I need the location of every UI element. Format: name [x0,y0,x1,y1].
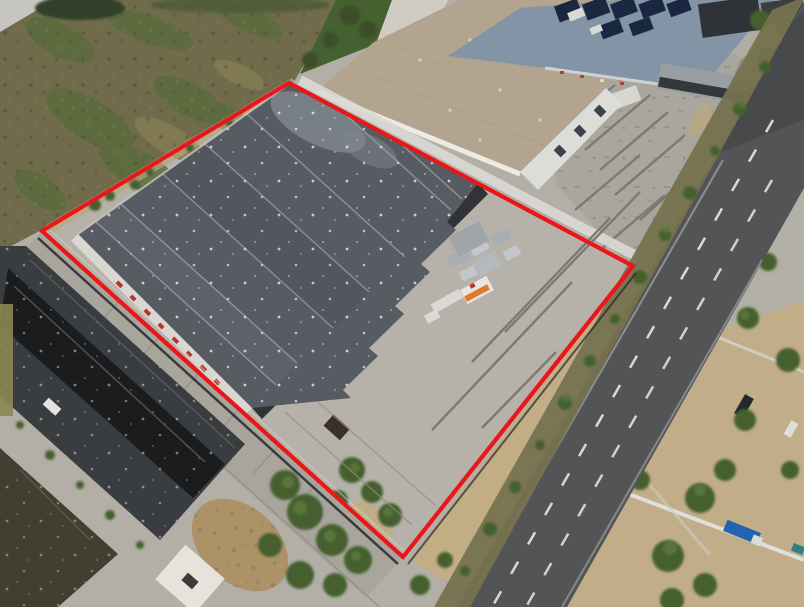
aerial-scene [0,0,804,607]
olive-strip [0,304,13,416]
aerial-photo-canvas [0,0,804,607]
